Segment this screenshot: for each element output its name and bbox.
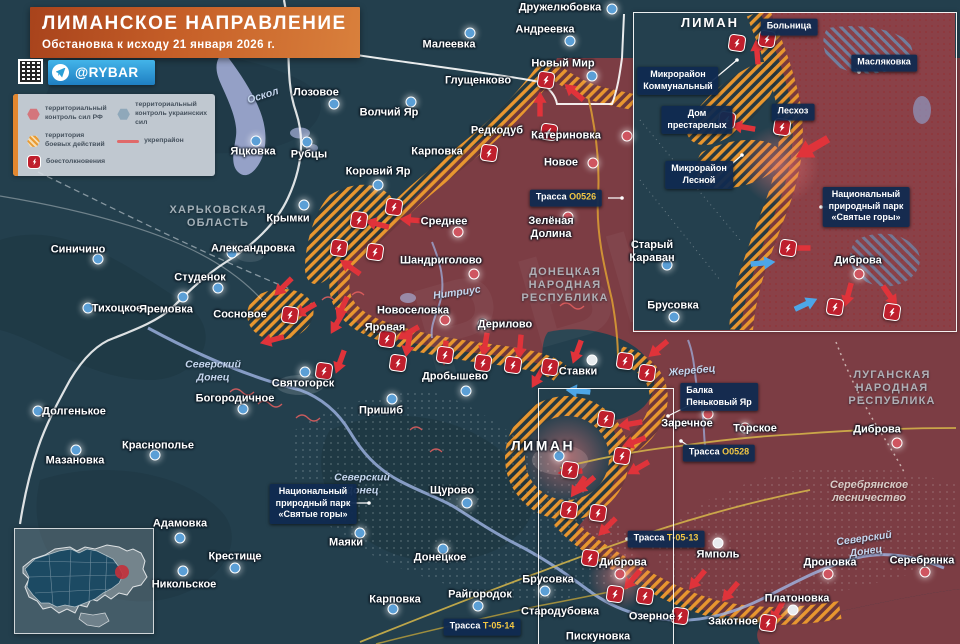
clash-swatch (27, 155, 41, 169)
telegram-handle: @RYBAR (75, 65, 139, 80)
city-inset (633, 12, 955, 330)
telegram-banner[interactable]: @RYBAR (48, 60, 155, 85)
map-subtitle: Обстановка к исходу 21 января 2026 г. (42, 39, 348, 51)
controlled-regions (25, 549, 123, 607)
legend-item-clashes: боестолкновения (27, 155, 111, 169)
legend-item-ua-control: территориальный контроль украинских сил (117, 101, 208, 127)
map-title: ЛИМАНСКОЕ НАПРАВЛЕНИЕ (42, 13, 348, 35)
title-banner: ЛИМАНСКОЕ НАПРАВЛЕНИЕ Обстановка к исход… (30, 7, 360, 58)
legend-accent-bar (13, 94, 18, 176)
ua-control-swatch (117, 108, 130, 120)
legend-item-fortified-line: укрепрайон (117, 132, 208, 150)
situation-map: РЫБАРЬ ДружелюбовкаАндреевкаМалеевкаНовы… (0, 0, 960, 644)
legend-item-combat-zone: территория боевых действий (27, 132, 111, 150)
rf-control-swatch (27, 108, 40, 120)
qr-code (18, 59, 43, 84)
area-of-interest-marker (115, 565, 129, 579)
fortified-line-swatch (117, 140, 139, 143)
legend-item-rf-control: территориальный контроль сил РФ (27, 101, 111, 127)
legend-panel: территориальный контроль сил РФ территор… (13, 94, 215, 176)
combat-zone-swatch (27, 135, 40, 147)
ukraine-minimap (14, 528, 154, 634)
telegram-icon (52, 64, 69, 81)
